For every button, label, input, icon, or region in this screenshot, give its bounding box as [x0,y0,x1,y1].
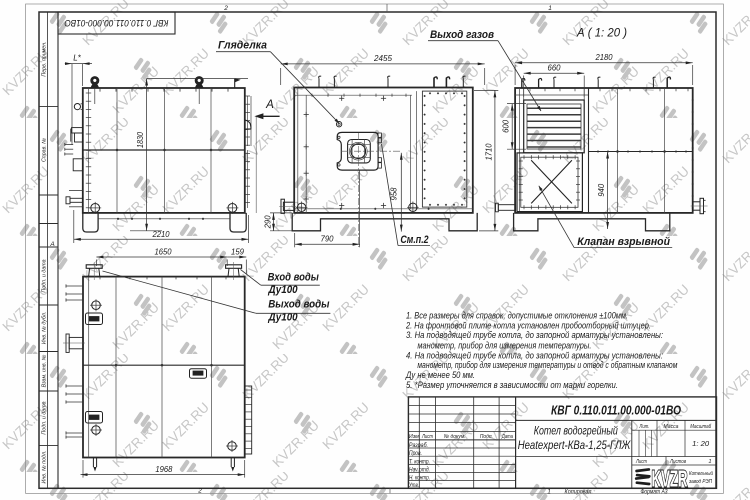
svg-text:Масса: Масса [664,424,680,430]
svg-text:КВГ 0.110.011.00.000-01ВО: КВГ 0.110.011.00.000-01ВО [65,18,169,28]
svg-text:159: 159 [231,246,244,256]
svg-text:№ докум.: № докум. [444,434,466,440]
svg-text:Пров.: Пров. [409,450,422,457]
svg-text:1650: 1650 [155,246,172,256]
svg-text:манометр, прибор для измерения: манометр, прибор для измерения температу… [417,340,591,350]
svg-text:А ( 1: 20 ): А ( 1: 20 ) [576,26,627,40]
svg-text:См.п.2: См.п.2 [400,234,428,246]
svg-text:манометр, прибор для измерения: манометр, прибор для измерения температу… [417,360,677,370]
svg-text:Ду не менее 50 мм.: Ду не менее 50 мм. [405,370,475,380]
svg-text:Инв. № подл.: Инв. № подл. [42,451,48,484]
svg-text:Котельный: Котельный [689,470,713,477]
svg-text:Дата: Дата [501,434,513,440]
svg-text:Гляделка: Гляделка [218,39,267,51]
svg-text:1710: 1710 [483,143,493,160]
svg-text:1: 1 [708,459,711,465]
svg-text:3. На подводящей трубе котла,: 3. На подводящей трубе котла, до запорно… [406,330,663,340]
svg-text:Лист: Лист [421,434,433,440]
svg-text:Т. контр.: Т. контр. [409,458,430,465]
svg-text:2: 2 [223,5,228,12]
svg-text:940: 940 [596,184,606,197]
svg-text:Котел водогрейный: Котел водогрейный [534,424,618,438]
svg-text:Изм: Изм [409,434,419,440]
svg-text:Копировал: Копировал [565,488,592,495]
svg-text:Подп. и дата: Подп. и дата [42,259,48,292]
svg-text:Выход газов: Выход газов [430,29,494,41]
svg-text:Листов: Листов [669,459,686,465]
svg-text:600: 600 [500,120,510,133]
svg-text:2210: 2210 [152,229,170,239]
svg-text:завод РЭП: завод РЭП [688,479,712,485]
svg-text:Взам. инв. №: Взам. инв. № [42,354,48,387]
svg-text:1: 20: 1: 20 [692,439,710,448]
svg-text:А: А [49,241,54,248]
svg-text:2180: 2180 [595,52,613,62]
svg-text:КВГ 0.110.011.00.000-01ВО: КВГ 0.110.011.00.000-01ВО [551,403,681,418]
svg-text:2: 2 [197,488,202,495]
svg-text:Инв. № дубл.: Инв. № дубл. [42,312,48,345]
svg-text:А: А [265,99,274,111]
svg-text:1968: 1968 [155,464,172,474]
svg-text:4. На подводящей трубе котла,: 4. На подводящей трубе котла, до запорно… [406,350,663,360]
svg-text:Утв.: Утв. [408,482,419,489]
svg-text:Лист: Лист [635,459,647,465]
svg-text:1: 1 [548,5,552,12]
svg-text:Вход воды: Вход воды [268,272,320,284]
svg-text:Справ. №: Справ. № [42,138,48,162]
svg-text:Нач.отд.: Нач.отд. [409,467,430,474]
svg-text:Ду100: Ду100 [268,284,299,296]
svg-text:Подп.: Подп. [480,434,493,440]
svg-text:5. *Размер уточняется в зависи: 5. *Размер уточняется в зависимости от м… [406,380,618,390]
svg-text:Масштаб: Масштаб [690,424,712,430]
svg-text:2. На фронтовой плите котла ус: 2. На фронтовой плите котла установлен п… [405,321,651,331]
svg-text:Выход воды: Выход воды [268,299,330,311]
svg-text:KVZR: KVZR [652,465,688,491]
svg-text:Н. контр.: Н. контр. [409,474,430,481]
svg-text:Разраб.: Разраб. [409,442,428,449]
svg-text:2455: 2455 [373,53,392,63]
svg-text:Клапан взрывной: Клапан взрывной [577,236,670,248]
svg-text:L*: L* [73,54,81,63]
svg-text:1830: 1830 [135,132,145,148]
svg-text:Подп. и дата: Подп. и дата [42,401,48,434]
svg-text:Heatexpert-КВа-1,25-ГЛЖ: Heatexpert-КВа-1,25-ГЛЖ [518,438,631,452]
svg-text:660: 660 [548,63,561,73]
svg-text:790: 790 [321,234,334,244]
svg-text:1. Все размеры для справок, до: 1. Все размеры для справок, допустимые о… [406,311,628,321]
svg-text:Перв. примен.: Перв. примен. [42,41,48,76]
svg-text:1: 1 [547,488,551,495]
svg-text:Лит.: Лит. [639,424,650,430]
svg-text:290: 290 [263,215,272,230]
